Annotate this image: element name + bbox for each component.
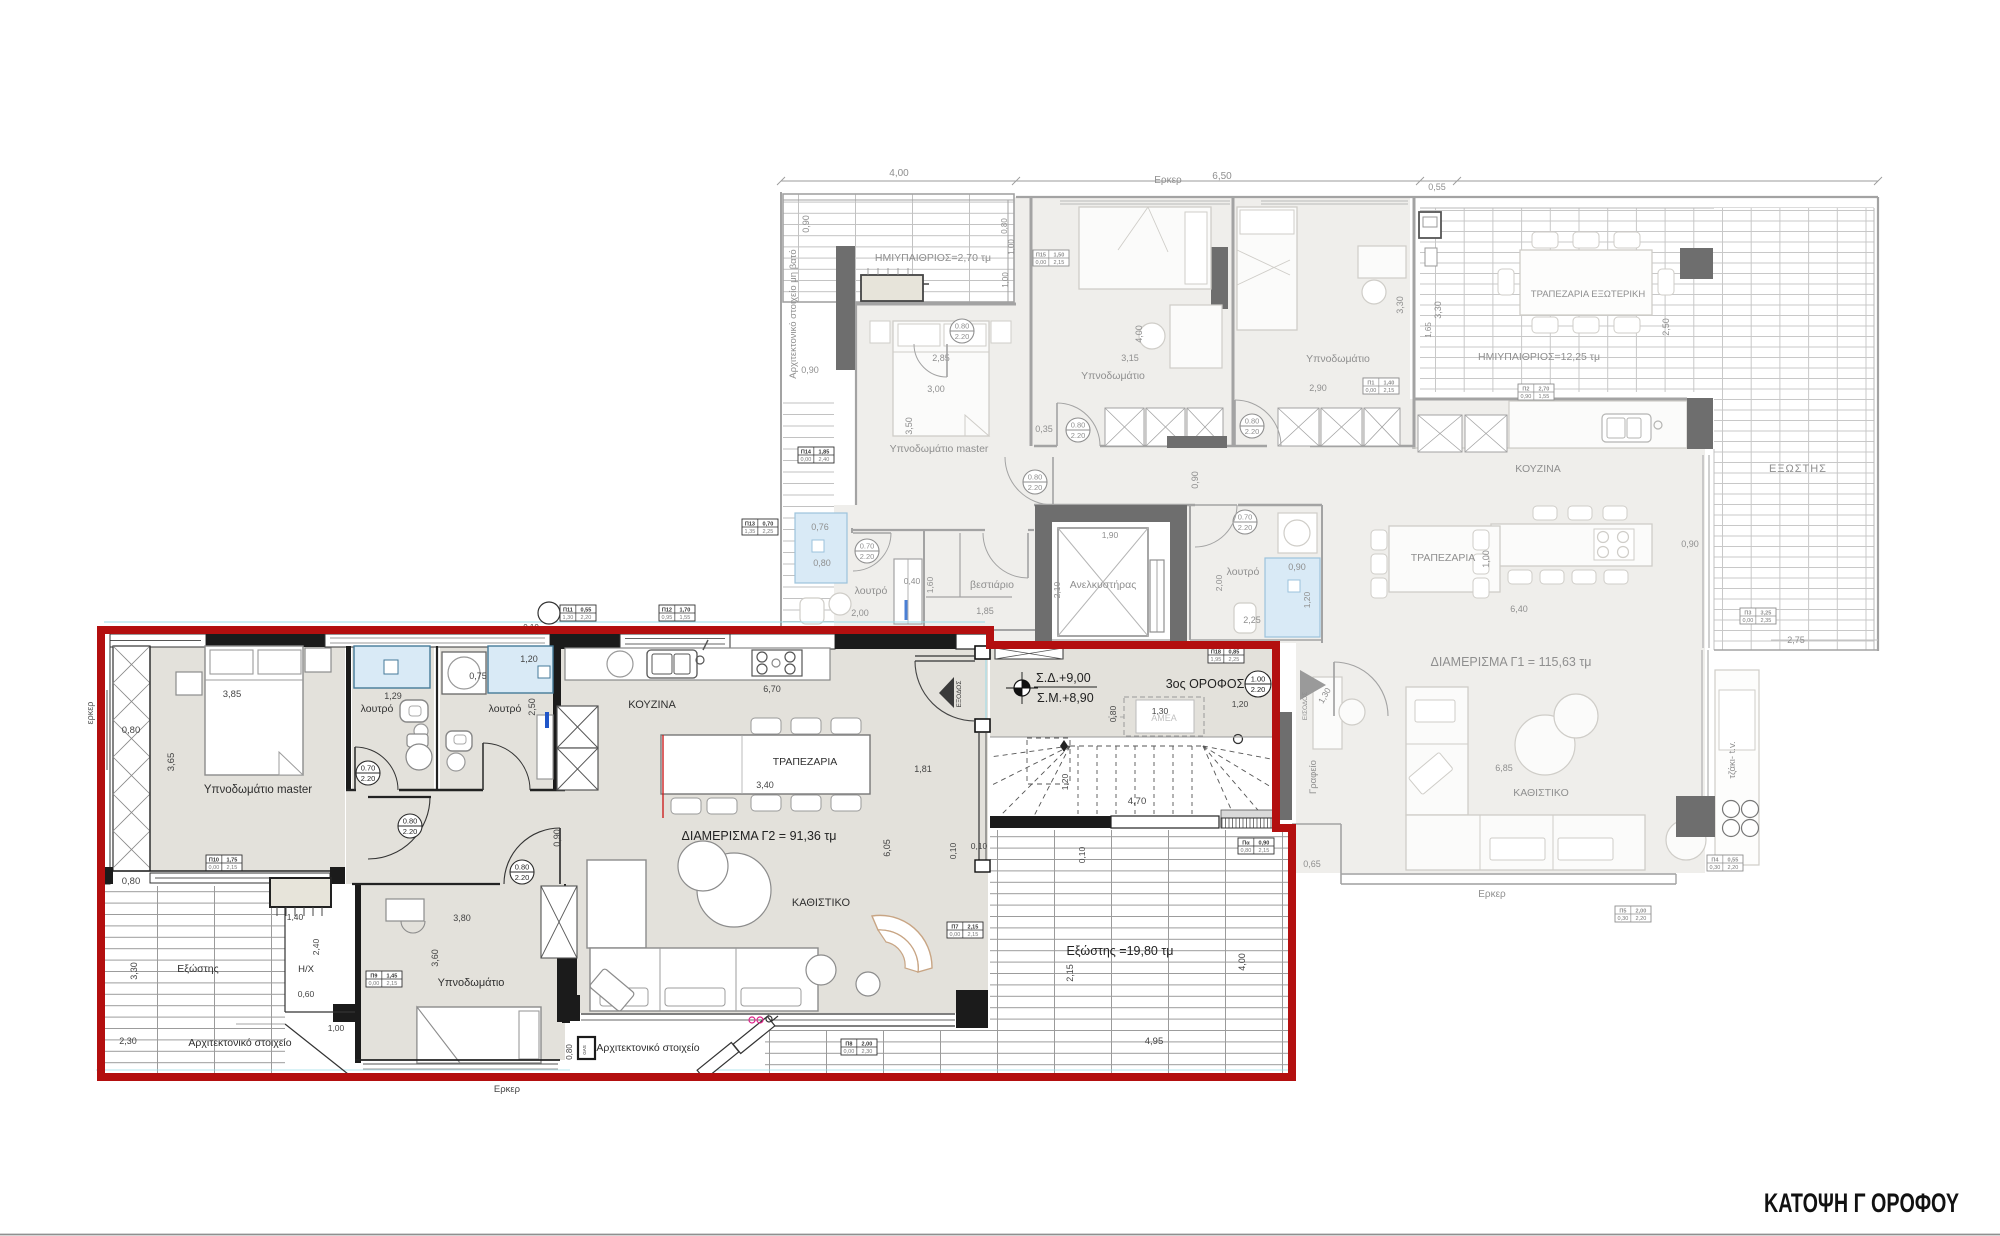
svg-text:λουτρό: λουτρό: [1227, 566, 1260, 578]
svg-text:0,80: 0,80: [1000, 218, 1009, 234]
svg-text:0,55: 0,55: [1728, 858, 1739, 864]
svg-text:2,15: 2,15: [1054, 260, 1065, 266]
svg-text:2,00: 2,00: [1214, 574, 1224, 591]
svg-text:1,20: 1,20: [520, 654, 538, 664]
svg-text:0,90: 0,90: [1288, 562, 1306, 572]
svg-text:0,85: 0,85: [1229, 650, 1240, 656]
svg-text:6,05: 6,05: [882, 839, 892, 857]
svg-text:0,90: 0,90: [1190, 471, 1200, 489]
svg-text:0,76: 0,76: [811, 522, 829, 532]
svg-text:Π9: Π9: [370, 974, 377, 980]
svg-text:Εξώστης: Εξώστης: [177, 963, 218, 975]
svg-text:2,50: 2,50: [527, 698, 537, 716]
svg-text:Αρχιτεκτονικό στοιχείο: Αρχιτεκτονικό στοιχείο: [596, 1042, 699, 1054]
svg-text:1,90: 1,90: [1102, 530, 1119, 540]
svg-text:1,70: 1,70: [680, 608, 691, 614]
svg-text:3,25: 3,25: [1761, 611, 1772, 617]
svg-text:Γραφείο: Γραφείο: [1308, 760, 1319, 794]
svg-text:0,10: 0,10: [1077, 846, 1087, 863]
svg-text:Ερκερ: Ερκερ: [1478, 889, 1506, 900]
svg-text:2,00: 2,00: [862, 1042, 873, 1048]
svg-text:ΔΙΑΜΕΡΙΣΜΑ Γ1 = 115,63 τμ: ΔΙΑΜΕΡΙΣΜΑ Γ1 = 115,63 τμ: [1431, 655, 1592, 669]
svg-text:0,00: 0,00: [209, 865, 220, 871]
svg-text:3,40: 3,40: [756, 780, 774, 790]
svg-text:1,65: 1,65: [1424, 322, 1433, 338]
svg-text:Π5: Π5: [1619, 909, 1626, 915]
svg-text:2,35: 2,35: [1761, 618, 1772, 624]
svg-text:2,15: 2,15: [227, 865, 238, 871]
svg-text:0.80: 0.80: [1028, 473, 1043, 482]
svg-text:2.20: 2.20: [403, 827, 418, 836]
svg-text:1,55: 1,55: [1539, 394, 1550, 400]
svg-text:3,65: 3,65: [166, 753, 177, 772]
svg-text:2,70: 2,70: [1539, 387, 1550, 393]
svg-text:1,40: 1,40: [1384, 381, 1395, 387]
svg-text:Αρχιτεκτονικό στοιχείο μη βατό: Αρχιτεκτονικό στοιχείο μη βατό: [788, 249, 799, 378]
svg-text:0,80: 0,80: [122, 876, 141, 887]
svg-text:1,29: 1,29: [384, 691, 402, 701]
svg-text:Π11: Π11: [563, 608, 573, 614]
svg-text:Ερκερ: Ερκερ: [1154, 175, 1182, 186]
svg-text:0.70: 0.70: [860, 542, 875, 551]
svg-text:0,10: 0,10: [971, 841, 988, 851]
svg-text:0,00: 0,00: [1366, 388, 1377, 394]
svg-text:ΚΑΘΙΣΤΙΚΟ: ΚΑΘΙΣΤΙΚΟ: [792, 897, 851, 909]
svg-text:Υπνοδωμάτιο master: Υπνοδωμάτιο master: [204, 784, 312, 796]
svg-text:0,90: 0,90: [1681, 539, 1699, 549]
svg-text:4,00: 4,00: [1134, 325, 1144, 343]
svg-text:2,10: 2,10: [1052, 581, 1062, 598]
svg-text:λουτρό: λουτρό: [489, 703, 522, 715]
svg-text:1,30: 1,30: [563, 615, 574, 621]
svg-text:Αρχιτεκτονικό στοιχείο: Αρχιτεκτονικό στοιχείο: [188, 1037, 291, 1049]
svg-text:0,80: 0,80: [565, 1044, 574, 1060]
svg-text:0,90: 0,90: [801, 365, 819, 375]
svg-text:1,00: 1,00: [1001, 272, 1010, 288]
svg-text:H/X: H/X: [298, 964, 315, 975]
svg-text:GAS: GAS: [582, 1045, 587, 1055]
svg-text:0,55: 0,55: [581, 608, 592, 614]
svg-text:3,60: 3,60: [430, 949, 440, 967]
svg-text:0.80: 0.80: [403, 817, 418, 826]
svg-text:2,15: 2,15: [968, 925, 979, 931]
svg-text:ΚΟΥΖΙΝΑ: ΚΟΥΖΙΝΑ: [628, 699, 676, 711]
svg-text:Πα: Πα: [1242, 841, 1250, 847]
svg-text:0,55: 0,55: [1428, 182, 1446, 192]
svg-text:0,90: 0,90: [552, 829, 562, 847]
svg-text:0,30: 0,30: [1618, 916, 1629, 922]
svg-text:0,65: 0,65: [1303, 859, 1321, 869]
svg-text:0,80: 0,80: [1241, 848, 1252, 854]
svg-text:2,50: 2,50: [1661, 318, 1671, 336]
svg-text:0,90: 0,90: [1521, 394, 1532, 400]
svg-text:2,15: 2,15: [1065, 964, 1075, 982]
svg-text:ΤΡΑΠΕΖΑΡΙΑ: ΤΡΑΠΕΖΑΡΙΑ: [773, 756, 838, 768]
svg-text:1,75: 1,75: [227, 858, 238, 864]
svg-text:2,30: 2,30: [119, 1036, 137, 1046]
svg-text:1,95: 1,95: [1211, 657, 1222, 663]
svg-text:3,50: 3,50: [904, 417, 914, 435]
svg-text:Π8: Π8: [845, 1042, 852, 1048]
svg-text:4,00: 4,00: [889, 168, 909, 179]
svg-text:0,80: 0,80: [1108, 705, 1118, 722]
svg-text:Π18: Π18: [1211, 650, 1221, 656]
svg-text:3,30: 3,30: [1433, 301, 1443, 319]
svg-text:ΤΡΑΠΕΖΑΡΙΑ: ΤΡΑΠΕΖΑΡΙΑ: [1411, 552, 1476, 564]
svg-text:3,30: 3,30: [129, 962, 139, 980]
svg-text:ΕΞΟΔΟΣ: ΕΞΟΔΟΣ: [956, 681, 963, 708]
svg-text:0,35: 0,35: [1035, 424, 1053, 434]
svg-text:2,40: 2,40: [819, 457, 830, 463]
svg-text:0.80: 0.80: [515, 863, 530, 872]
svg-text:2,75: 2,75: [1787, 635, 1805, 645]
svg-text:2.20: 2.20: [860, 552, 875, 561]
svg-text:ΚΑΘΙΣΤΙΚΟ: ΚΑΘΙΣΤΙΚΟ: [1513, 787, 1569, 799]
svg-text:2,20: 2,20: [1636, 916, 1647, 922]
svg-text:0,30: 0,30: [1710, 865, 1721, 871]
svg-text:0,00: 0,00: [1743, 618, 1754, 624]
svg-text:1,85: 1,85: [819, 450, 830, 456]
svg-text:τζάκι- t.v.: τζάκι- t.v.: [1727, 741, 1738, 778]
svg-text:3,30: 3,30: [1395, 296, 1405, 314]
svg-text:4,70: 4,70: [1128, 796, 1147, 807]
svg-text:1.00: 1.00: [1251, 675, 1266, 684]
svg-text:βεστιάριο: βεστιάριο: [970, 579, 1014, 591]
svg-text:Π4: Π4: [1711, 858, 1719, 864]
svg-text:0.80: 0.80: [955, 322, 970, 331]
svg-text:Π15: Π15: [1036, 253, 1046, 259]
svg-text:0,00: 0,00: [950, 932, 961, 938]
svg-text:0,00: 0,00: [844, 1049, 855, 1055]
svg-text:6,85: 6,85: [1495, 763, 1513, 773]
svg-text:Π2: Π2: [1522, 387, 1529, 393]
svg-text:2,25: 2,25: [763, 529, 774, 535]
svg-text:1,85: 1,85: [976, 606, 994, 616]
svg-text:Π3: Π3: [1744, 611, 1751, 617]
svg-text:2,40: 2,40: [311, 938, 321, 955]
svg-text:0,40: 0,40: [904, 576, 921, 586]
svg-text:Ανελκυστήρας: Ανελκυστήρας: [1070, 579, 1137, 591]
svg-text:Π7: Π7: [951, 925, 958, 931]
svg-text:0,70: 0,70: [763, 522, 774, 528]
svg-text:1,20: 1,20: [1232, 699, 1249, 709]
svg-text:1,00: 1,00: [1481, 550, 1491, 568]
svg-text:1,50: 1,50: [1054, 253, 1065, 259]
svg-text:2,00: 2,00: [1636, 909, 1647, 915]
svg-text:ΗΜΙΥΠΑΙΘΡΙΟΣ=2,70 τμ: ΗΜΙΥΠΑΙΘΡΙΟΣ=2,70 τμ: [875, 252, 991, 264]
svg-text:0.70: 0.70: [361, 764, 376, 773]
svg-text:0,00: 0,00: [1036, 260, 1047, 266]
svg-text:6,70: 6,70: [763, 684, 781, 694]
svg-text:0,00: 0,00: [369, 981, 380, 987]
svg-text:ΕΙΣΟΔΟΣ: ΕΙΣΟΔΟΣ: [1302, 692, 1309, 720]
svg-text:0,90: 0,90: [801, 215, 811, 233]
svg-text:1,40: 1,40: [287, 912, 304, 922]
svg-text:ερκερ: ερκερ: [85, 702, 95, 725]
svg-text:Υπνοδωμάτιο: Υπνοδωμάτιο: [1081, 370, 1145, 382]
svg-text:1,20: 1,20: [1060, 773, 1070, 790]
svg-text:Υπνοδωμάτιο: Υπνοδωμάτιο: [438, 977, 505, 989]
svg-text:ΚΟΥΖΙΝΑ: ΚΟΥΖΙΝΑ: [1515, 463, 1560, 475]
svg-text:2,15: 2,15: [387, 981, 398, 987]
svg-text:Σ.Μ.+8,90: Σ.Μ.+8,90: [1037, 691, 1094, 705]
svg-text:λουτρό: λουτρό: [361, 703, 394, 715]
svg-text:1,35: 1,35: [745, 529, 756, 535]
svg-text:0.70: 0.70: [1238, 513, 1253, 522]
svg-text:6,40: 6,40: [1510, 604, 1528, 614]
svg-text:ΕΞΩΣΤΗΣ: ΕΞΩΣΤΗΣ: [1769, 463, 1827, 475]
svg-text:2.20: 2.20: [1251, 685, 1266, 694]
svg-text:ΚΑΤΟΨΗ Γ ΟΡΟΦΟΥ: ΚΑΤΟΨΗ Γ ΟΡΟΦΟΥ: [1764, 1188, 1959, 1218]
svg-text:2.20: 2.20: [361, 774, 376, 783]
svg-text:2.20: 2.20: [955, 332, 970, 341]
svg-text:2,20: 2,20: [1728, 865, 1739, 871]
svg-text:Π12: Π12: [662, 608, 672, 614]
svg-text:0,60: 0,60: [298, 989, 315, 999]
svg-text:3ος ΟΡΟΦΟΣ: 3ος ΟΡΟΦΟΣ: [1166, 677, 1245, 691]
svg-text:Υπνοδωμάτιο: Υπνοδωμάτιο: [1306, 353, 1370, 365]
svg-text:1,30: 1,30: [1152, 706, 1169, 716]
svg-text:Υπνοδωμάτιο master: Υπνοδωμάτιο master: [890, 443, 989, 455]
svg-text:1,00: 1,00: [1007, 239, 1016, 255]
svg-text:1,00: 1,00: [328, 1023, 345, 1033]
svg-text:Π13: Π13: [745, 522, 755, 528]
svg-text:1,60: 1,60: [925, 576, 935, 593]
svg-text:2.20: 2.20: [1238, 523, 1253, 532]
svg-text:Σ.Δ.+9,00: Σ.Δ.+9,00: [1036, 671, 1091, 685]
svg-text:1,45: 1,45: [387, 974, 398, 980]
svg-text:2,25: 2,25: [1243, 615, 1261, 625]
svg-text:2,25: 2,25: [1229, 657, 1240, 663]
svg-text:1,20: 1,20: [1302, 591, 1312, 608]
svg-text:0,00: 0,00: [801, 457, 812, 463]
svg-text:3,80: 3,80: [453, 913, 471, 923]
svg-text:0,95: 0,95: [662, 615, 673, 621]
svg-text:0.80: 0.80: [1245, 417, 1260, 426]
svg-text:4,00: 4,00: [1237, 953, 1247, 971]
svg-text:2.20: 2.20: [1028, 483, 1043, 492]
svg-text:1,55: 1,55: [680, 615, 691, 621]
svg-text:Ερκερ: Ερκερ: [494, 1084, 521, 1095]
svg-text:λουτρό: λουτρό: [855, 585, 888, 597]
svg-text:Π14: Π14: [801, 450, 812, 456]
svg-text:0,90: 0,90: [1259, 841, 1270, 847]
svg-text:0,75: 0,75: [469, 671, 487, 681]
svg-text:0.80: 0.80: [1071, 421, 1086, 430]
svg-text:Π10: Π10: [209, 858, 219, 864]
svg-text:2.20: 2.20: [515, 873, 530, 882]
svg-text:Π1: Π1: [1367, 381, 1374, 387]
svg-text:2,15: 2,15: [1259, 848, 1270, 854]
svg-text:3,85: 3,85: [223, 689, 242, 700]
svg-text:0,80: 0,80: [122, 725, 141, 736]
svg-text:2.20: 2.20: [1245, 427, 1260, 436]
svg-text:3,15: 3,15: [1121, 353, 1139, 363]
svg-text:0,80: 0,80: [813, 558, 831, 568]
svg-text:2,15: 2,15: [1384, 388, 1395, 394]
svg-text:ΗΜΙΥΠΑΙΘΡΙΟΣ=12,25 τμ: ΗΜΙΥΠΑΙΘΡΙΟΣ=12,25 τμ: [1478, 351, 1600, 363]
svg-text:2.20: 2.20: [1071, 431, 1086, 440]
svg-text:3,00: 3,00: [927, 384, 945, 394]
svg-text:2,90: 2,90: [1309, 383, 1327, 393]
svg-text:Εξώστης =19,80 τμ: Εξώστης =19,80 τμ: [1067, 944, 1174, 958]
svg-text:2,00: 2,00: [851, 608, 869, 618]
svg-text:2,30: 2,30: [862, 1049, 873, 1055]
svg-text:4,95: 4,95: [1145, 1036, 1164, 1047]
svg-text:2,20: 2,20: [581, 615, 592, 621]
svg-text:2,15: 2,15: [968, 932, 979, 938]
svg-text:0,10: 0,10: [948, 842, 958, 859]
svg-text:ΤΡΑΠΕΖΑΡΙΑ ΕΞΩΤΕΡΙΚΗ: ΤΡΑΠΕΖΑΡΙΑ ΕΞΩΤΕΡΙΚΗ: [1531, 289, 1646, 300]
svg-text:6,50: 6,50: [1212, 171, 1232, 182]
svg-text:1,81: 1,81: [914, 764, 932, 774]
